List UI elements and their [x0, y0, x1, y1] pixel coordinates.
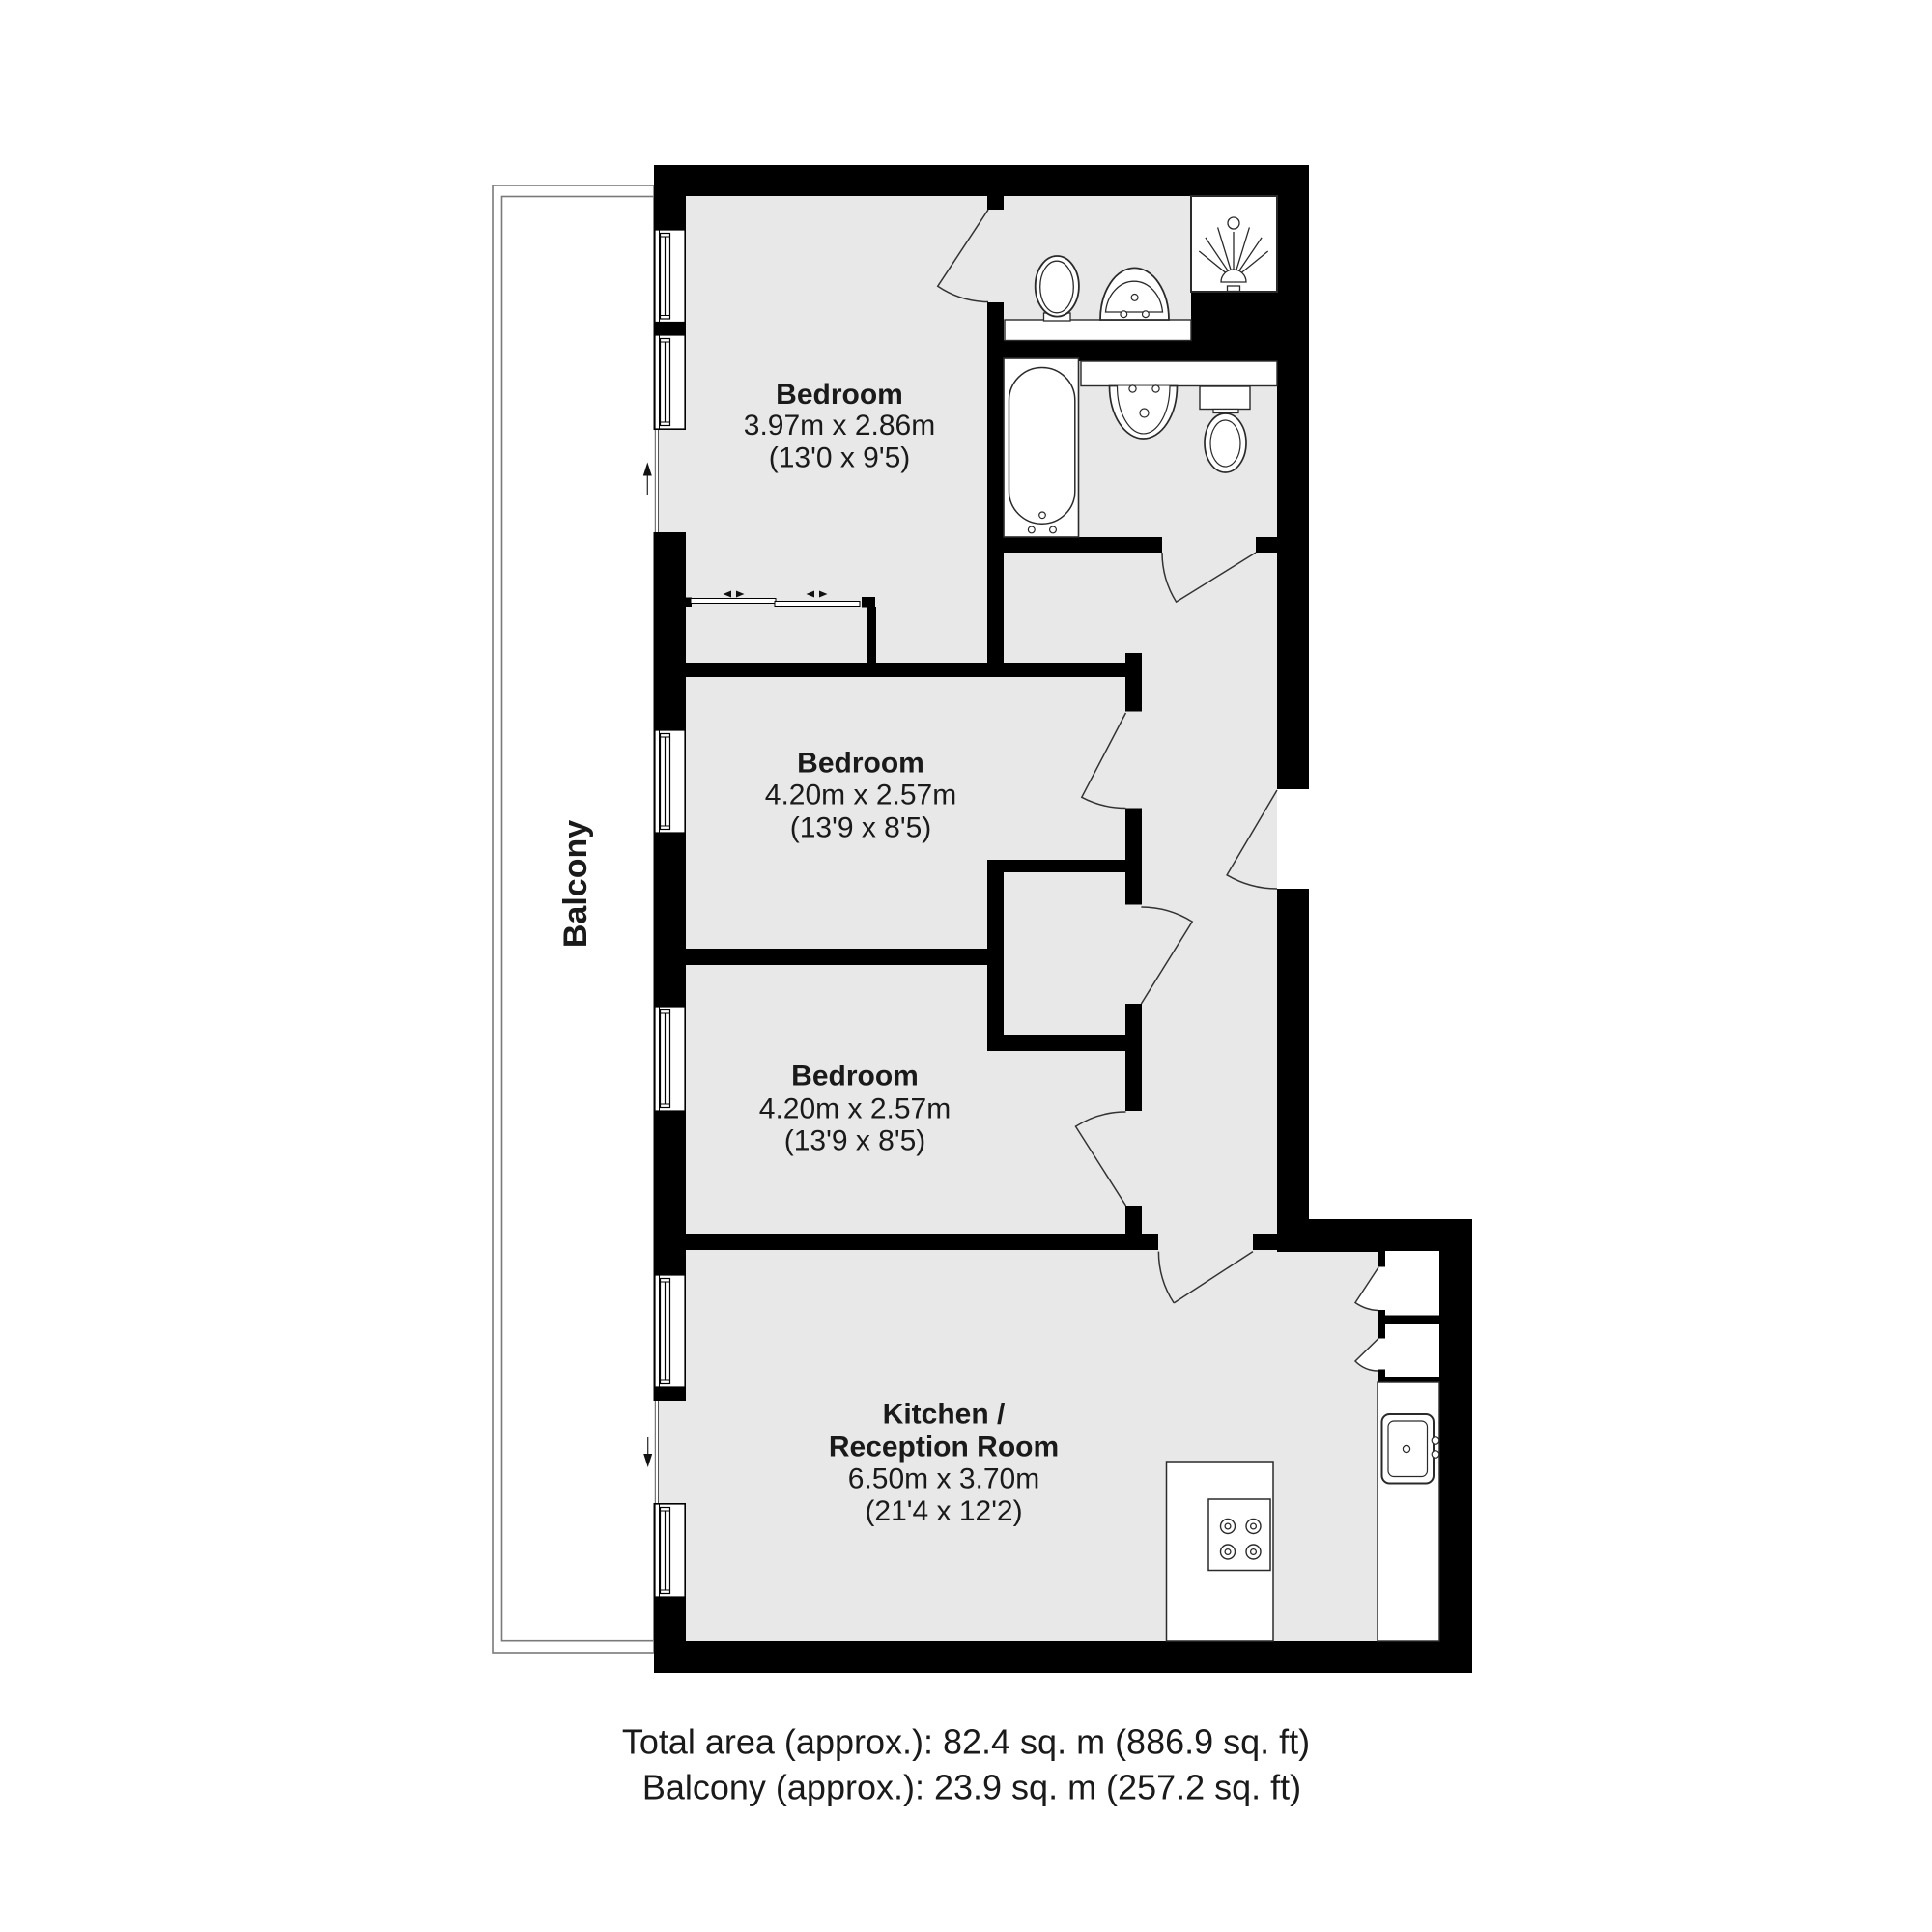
svg-text:(21'4 x 12'2): (21'4 x 12'2): [865, 1495, 1022, 1527]
svg-text:(13'9 x 8'5): (13'9 x 8'5): [784, 1125, 926, 1157]
svg-text:Total area (approx.): 82.4 sq.: Total area (approx.): 82.4 sq. m (886.9 …: [622, 1722, 1310, 1762]
svg-text:3.97m x 2.86m: 3.97m x 2.86m: [744, 410, 935, 441]
svg-text:Reception Room: Reception Room: [829, 1432, 1059, 1463]
svg-text:6.50m x 3.70m: 6.50m x 3.70m: [848, 1463, 1039, 1495]
svg-text:(13'9 x 8'5): (13'9 x 8'5): [790, 812, 932, 844]
svg-text:Bedroom: Bedroom: [776, 379, 903, 411]
svg-text:Bedroom: Bedroom: [797, 748, 924, 780]
svg-text:Balcony (approx.): 23.9 sq. m: Balcony (approx.): 23.9 sq. m (257.2 sq.…: [642, 1768, 1301, 1807]
svg-text:(13'0 x 9'5): (13'0 x 9'5): [769, 442, 911, 474]
svg-text:Kitchen /: Kitchen /: [883, 1399, 1006, 1431]
svg-text:Bedroom: Bedroom: [791, 1061, 919, 1093]
svg-text:4.20m x 2.57m: 4.20m x 2.57m: [759, 1094, 951, 1125]
svg-text:Balcony: Balcony: [557, 820, 594, 948]
svg-text:4.20m x 2.57m: 4.20m x 2.57m: [765, 780, 956, 811]
